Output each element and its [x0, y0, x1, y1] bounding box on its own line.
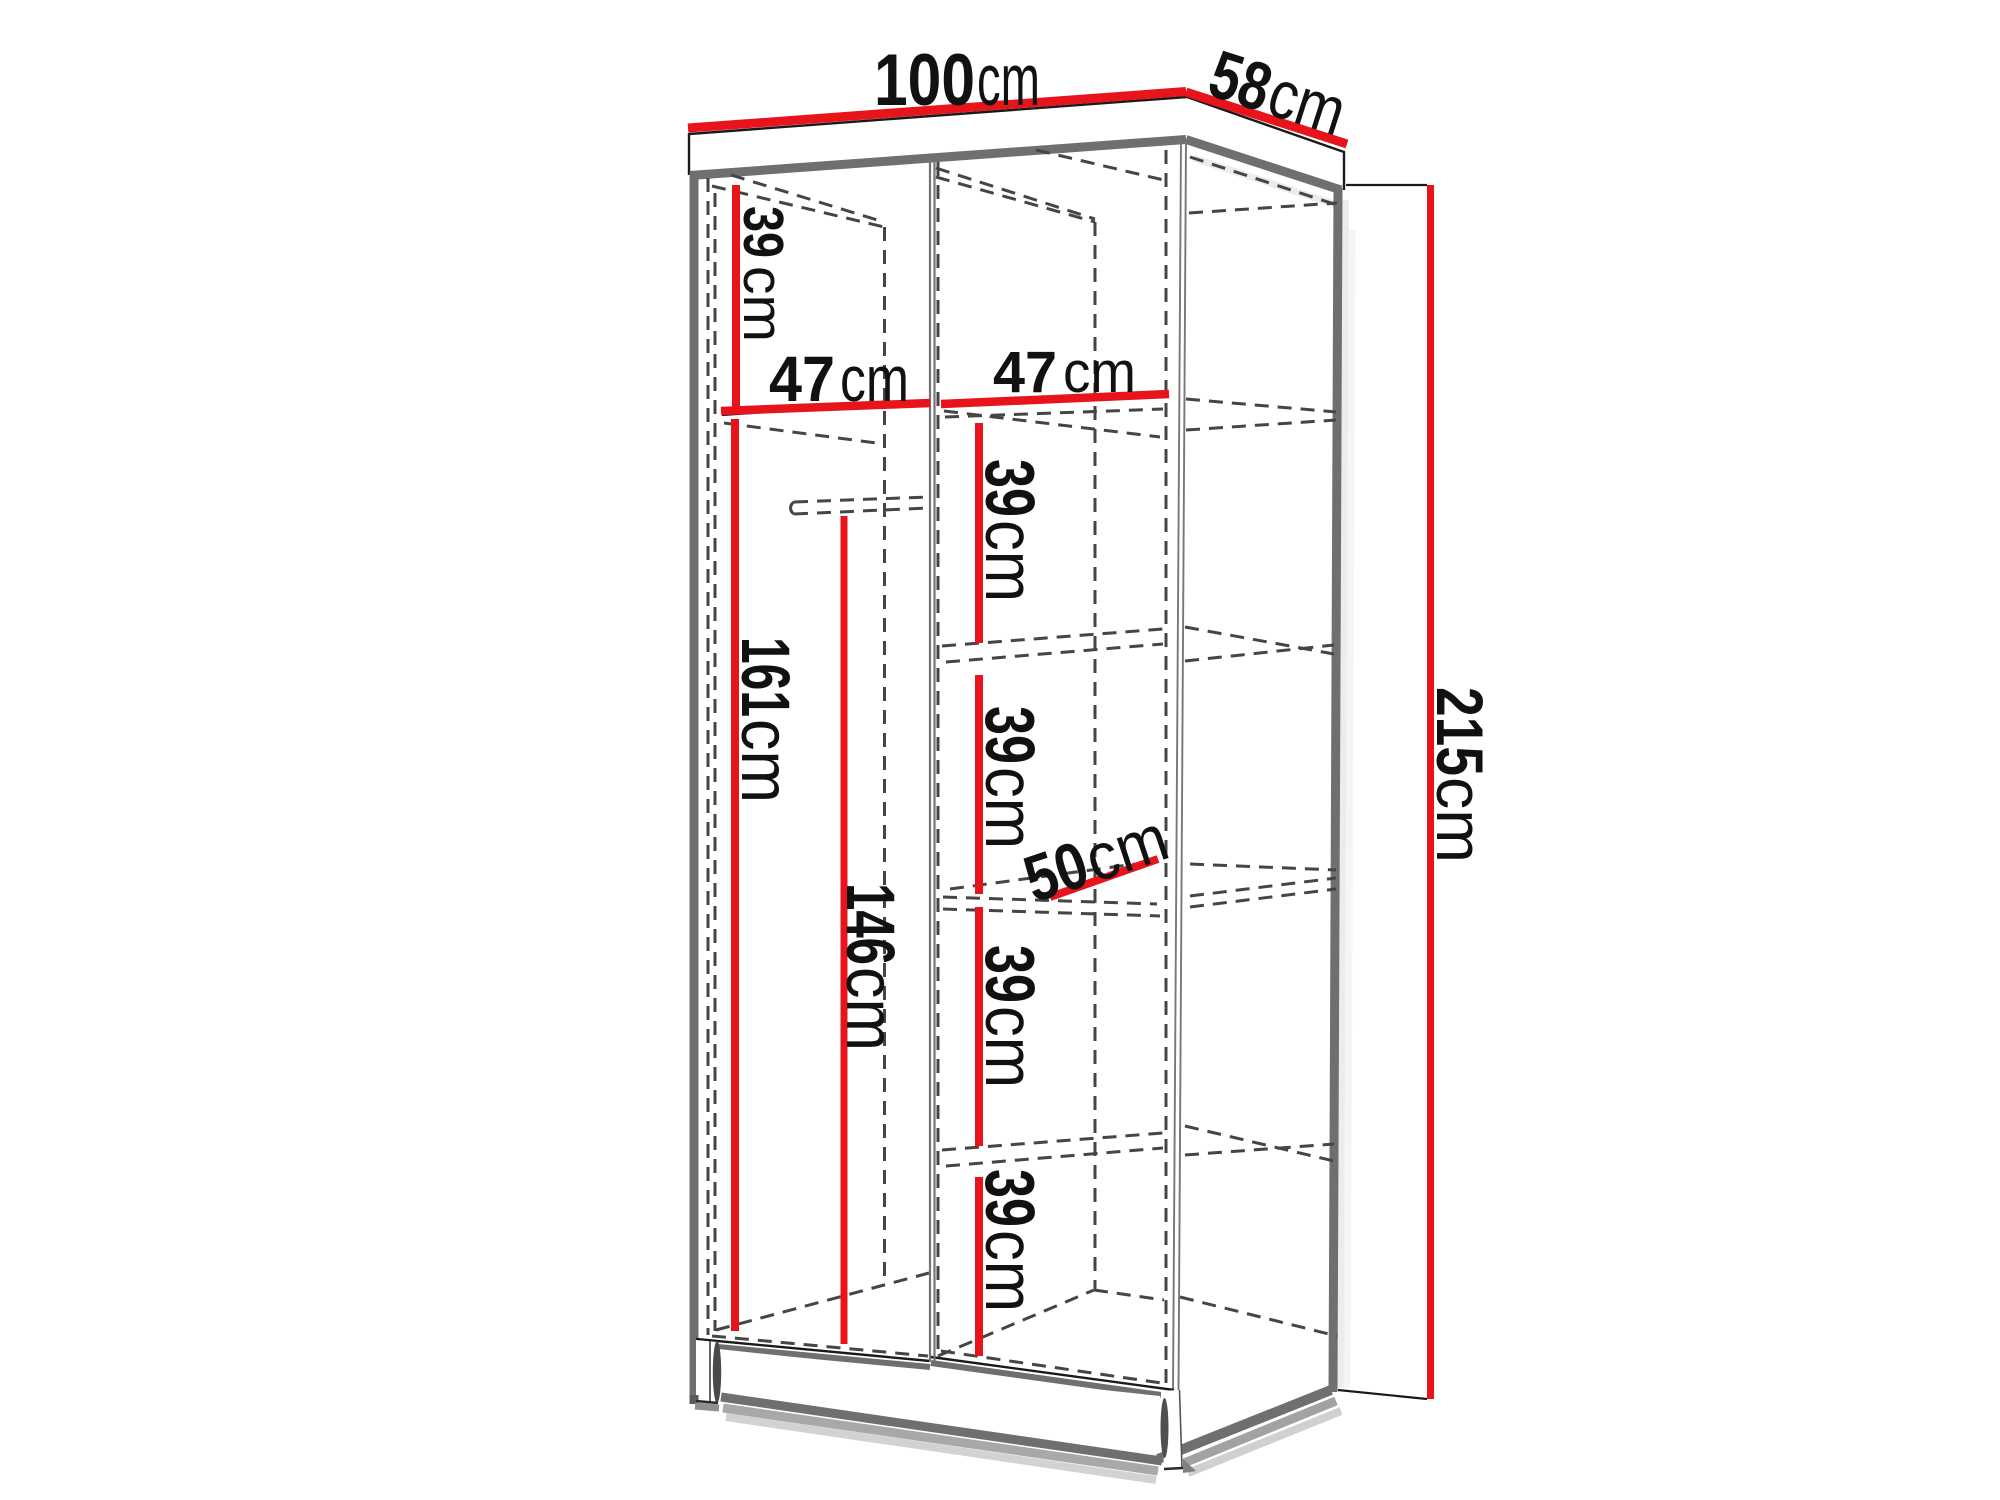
svg-text:39cm: 39cm [971, 706, 1049, 849]
svg-text:39cm: 39cm [971, 1169, 1049, 1312]
svg-text:39cm: 39cm [731, 206, 795, 342]
svg-text:161cm: 161cm [727, 637, 804, 803]
svg-text:39cm: 39cm [971, 459, 1049, 602]
svg-text:146cm: 146cm [832, 883, 909, 1051]
svg-text:215cm: 215cm [1423, 687, 1497, 863]
svg-text:100cm: 100cm [874, 40, 1040, 121]
svg-text:39cm: 39cm [971, 945, 1049, 1088]
svg-text:47cm: 47cm [993, 340, 1136, 405]
